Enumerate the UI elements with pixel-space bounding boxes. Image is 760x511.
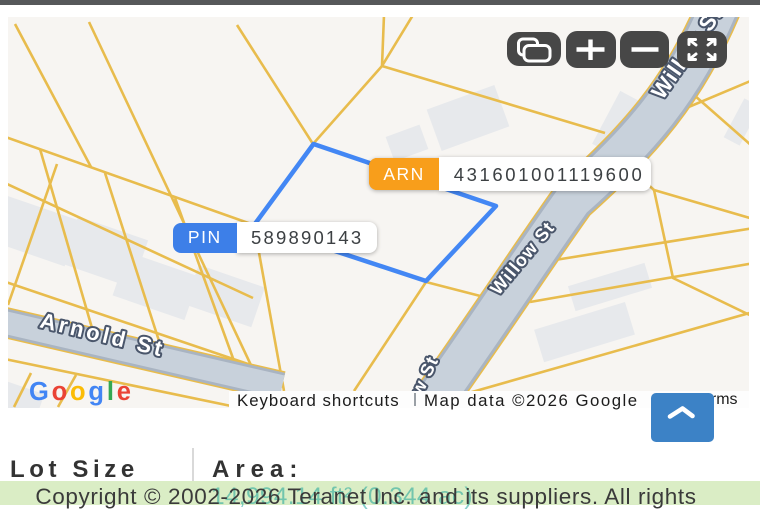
svg-text:Google: Google [29, 378, 134, 406]
